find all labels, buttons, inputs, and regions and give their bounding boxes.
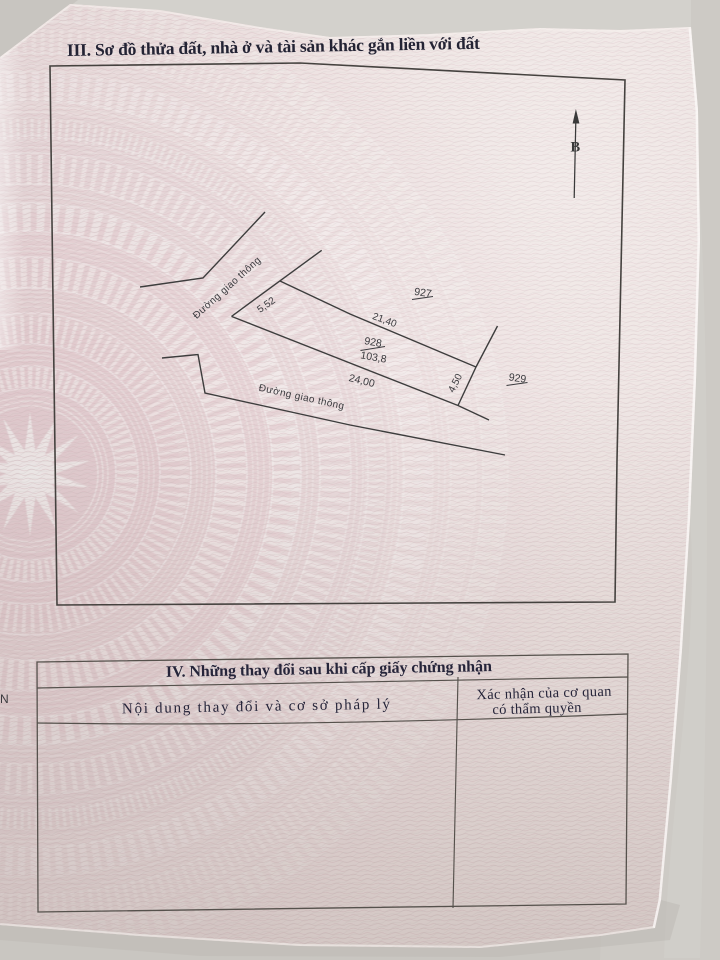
- svg-text:có thẩm quyền: có thẩm quyền: [492, 700, 582, 718]
- svg-text:B: B: [571, 140, 581, 156]
- svg-text:N: N: [0, 692, 9, 706]
